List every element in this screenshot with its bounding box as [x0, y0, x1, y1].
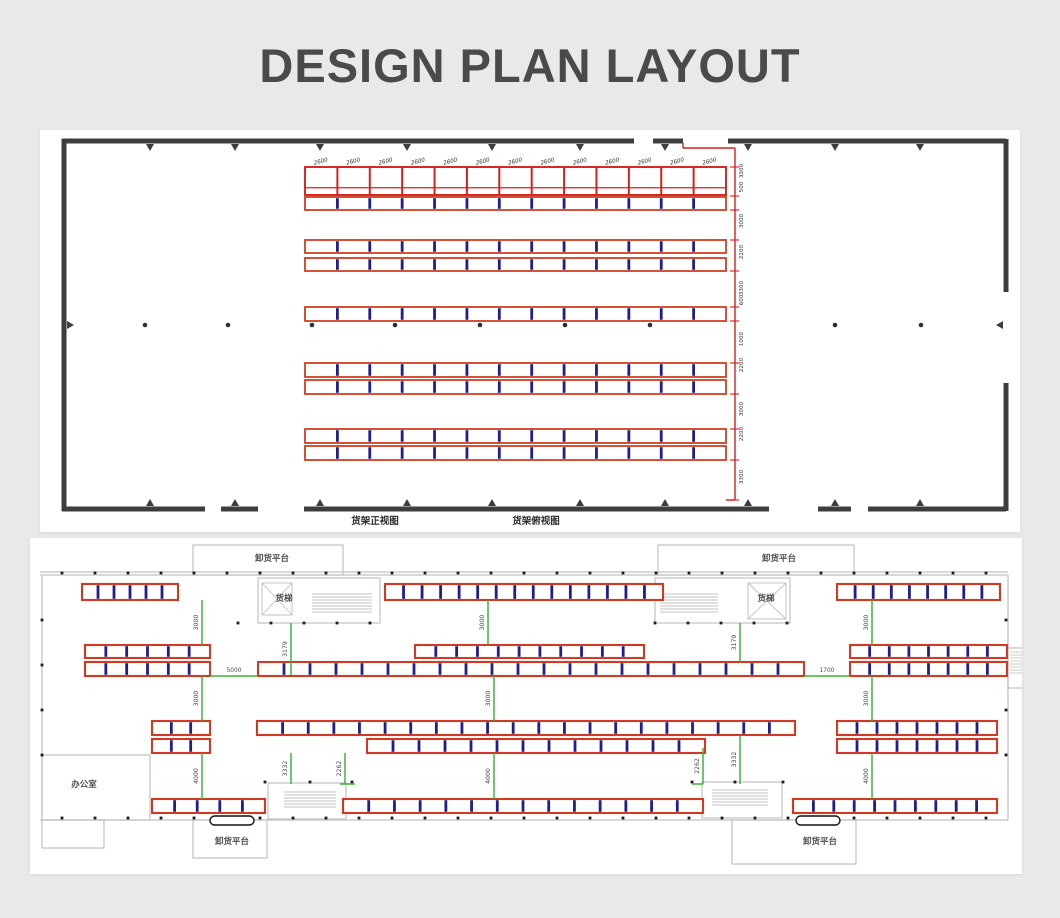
svg-text:3000: 3000 — [479, 615, 486, 631]
svg-text:5000: 5000 — [227, 668, 242, 674]
svg-text:3332: 3332 — [282, 761, 289, 777]
svg-text:3000: 3000 — [739, 213, 745, 228]
svg-text:货梯: 货梯 — [274, 593, 293, 604]
svg-text:2262: 2262 — [336, 761, 343, 777]
svg-text:2600: 2600 — [540, 157, 556, 166]
svg-text:2600: 2600 — [637, 157, 653, 166]
svg-text:2600: 2600 — [443, 157, 459, 166]
svg-text:2600: 2600 — [313, 157, 329, 166]
view-captions: 货架正视图货架俯视图 — [350, 515, 560, 527]
svg-text:3000: 3000 — [193, 615, 200, 631]
svg-text:600: 600 — [739, 294, 745, 305]
svg-text:2600: 2600 — [572, 157, 588, 166]
floor-plan-drawing: 3000300030003179317930003000300040004000… — [30, 538, 1022, 874]
svg-text:2600: 2600 — [670, 157, 686, 166]
svg-text:3179: 3179 — [731, 635, 738, 651]
svg-text:1700: 1700 — [820, 668, 835, 674]
svg-text:2600: 2600 — [475, 157, 491, 166]
svg-text:1000: 1000 — [739, 331, 745, 346]
svg-text:货架正视图: 货架正视图 — [350, 515, 399, 527]
svg-text:2600: 2600 — [346, 157, 362, 166]
svg-text:3300: 3300 — [739, 280, 745, 295]
page-title: DESIGN PLAN LAYOUT — [0, 38, 1060, 93]
svg-text:3300: 3300 — [739, 469, 745, 484]
svg-text:卸货平台: 卸货平台 — [215, 836, 250, 847]
svg-text:2200: 2200 — [739, 244, 745, 259]
svg-text:3000: 3000 — [863, 615, 870, 631]
svg-text:3000: 3000 — [193, 691, 200, 707]
svg-text:卸货平台: 卸货平台 — [762, 553, 797, 564]
svg-text:卸货平台: 卸货平台 — [255, 553, 290, 564]
svg-text:3000: 3000 — [739, 401, 745, 416]
svg-text:4000: 4000 — [193, 768, 200, 784]
rack-elevation-drawing: 2600260026002600260026002600260026002600… — [40, 130, 1020, 532]
stairs — [262, 583, 1022, 807]
svg-text:3000: 3000 — [485, 691, 492, 707]
svg-text:500: 500 — [739, 181, 745, 192]
svg-text:3300: 3300 — [739, 163, 745, 178]
svg-text:4000: 4000 — [863, 768, 870, 784]
svg-text:3000: 3000 — [863, 691, 870, 707]
svg-text:2600: 2600 — [378, 157, 394, 166]
floor-plan-panel: 3000300030003179317930003000300040004000… — [30, 538, 1022, 874]
svg-text:2200: 2200 — [739, 426, 745, 441]
svg-text:2600: 2600 — [410, 157, 426, 166]
svg-text:货架俯视图: 货架俯视图 — [511, 515, 560, 527]
svg-text:2600: 2600 — [508, 157, 524, 166]
svg-text:2262: 2262 — [694, 758, 701, 774]
page: DESIGN PLAN LAYOUT 260026002600260026002… — [0, 0, 1060, 918]
svg-text:2200: 2200 — [739, 357, 745, 372]
svg-text:办公室: 办公室 — [71, 779, 97, 790]
svg-text:3332: 3332 — [731, 752, 738, 768]
svg-text:4000: 4000 — [485, 768, 492, 784]
rack-rows: 2600260026002600260026002600260026002600… — [305, 157, 726, 460]
svg-text:3179: 3179 — [282, 641, 289, 657]
svg-text:2600: 2600 — [605, 157, 621, 166]
svg-text:卸货平台: 卸货平台 — [803, 836, 838, 847]
green-dimensions: 3000300030003179317930003000300040004000… — [193, 600, 872, 799]
rack-elevation-panel: 2600260026002600260026002600260026002600… — [40, 130, 1020, 532]
svg-text:2600: 2600 — [702, 157, 718, 166]
svg-text:货梯: 货梯 — [756, 593, 775, 604]
